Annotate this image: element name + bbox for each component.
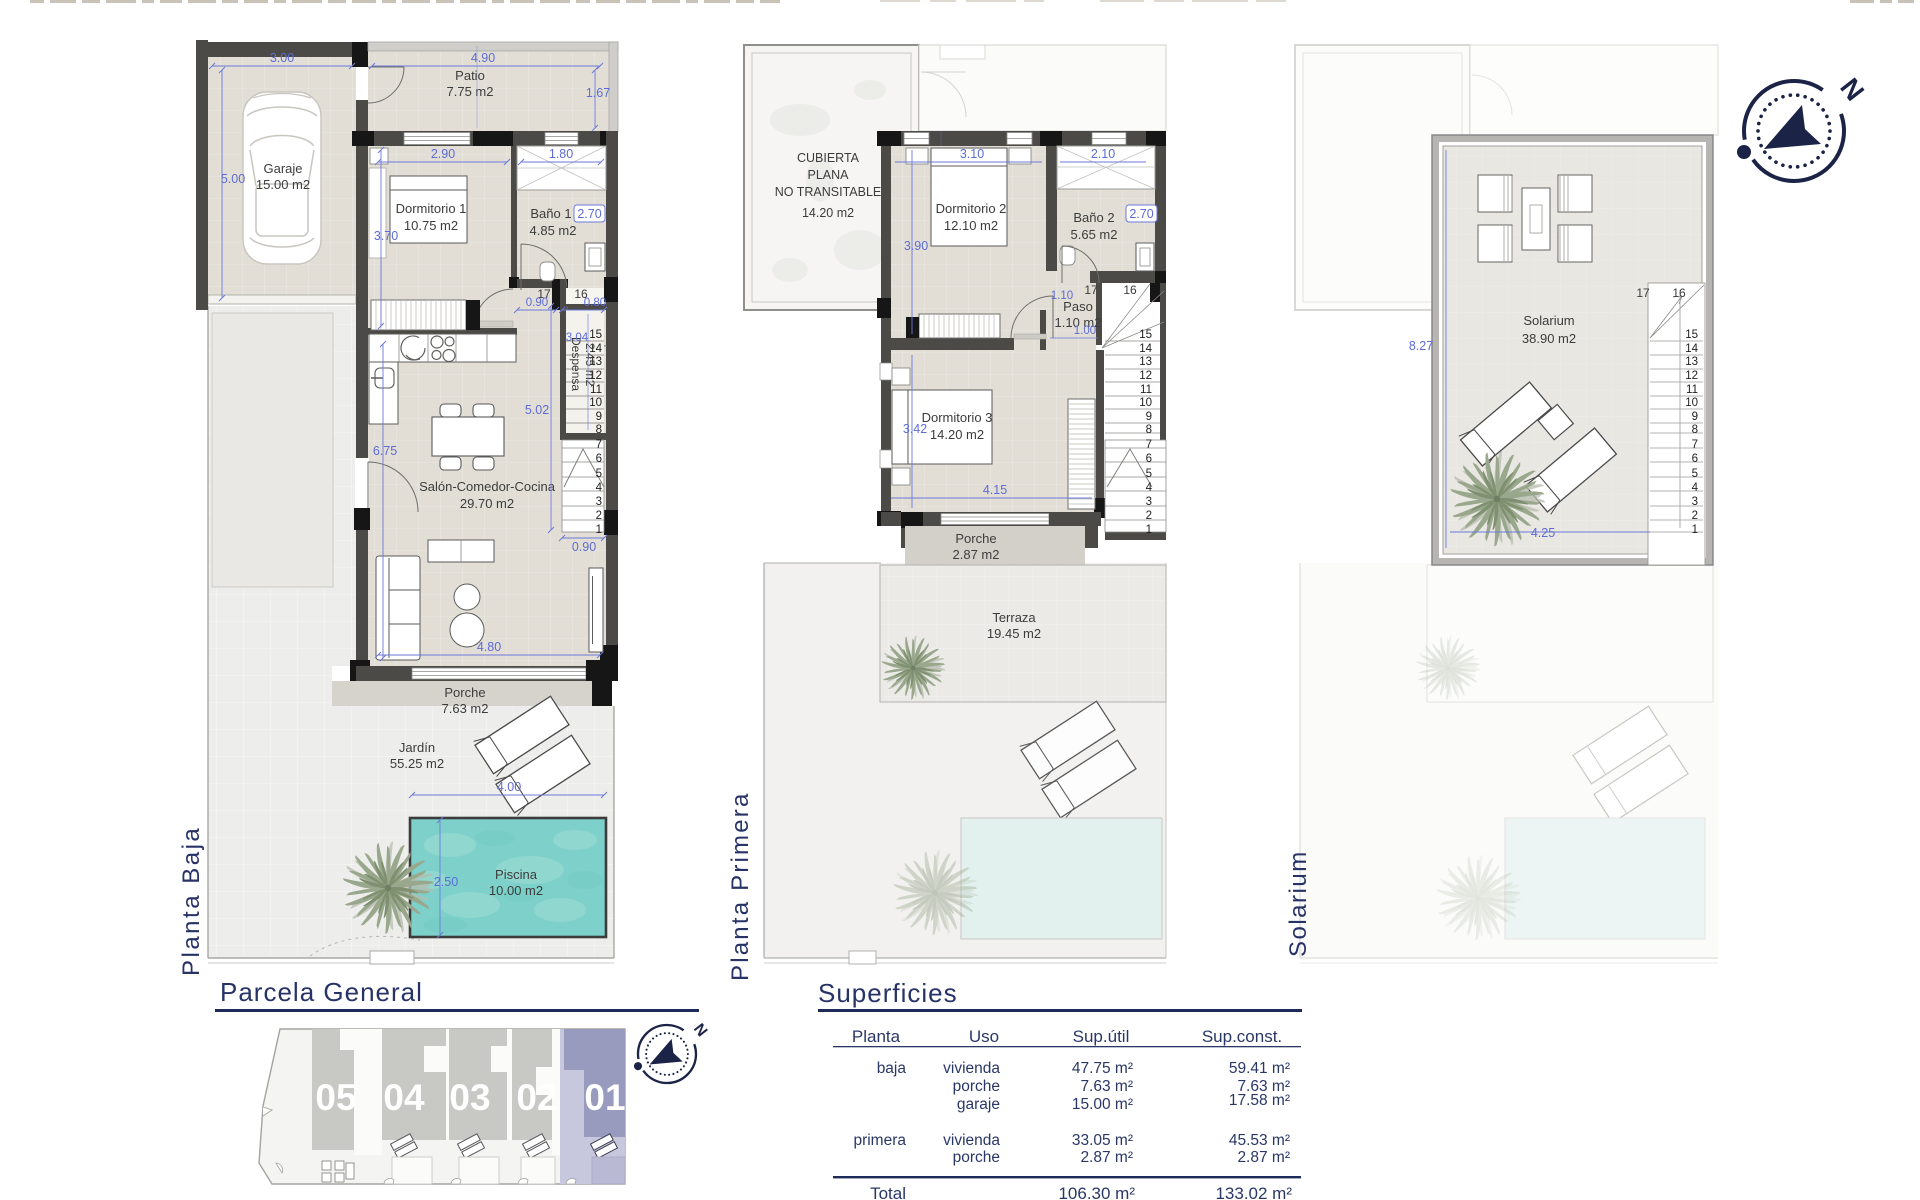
svg-text:vivienda: vivienda xyxy=(943,1060,1000,1077)
svg-text:17: 17 xyxy=(1084,283,1098,297)
svg-text:9: 9 xyxy=(596,411,602,423)
svg-text:3.90: 3.90 xyxy=(904,239,928,253)
svg-text:Total: Total xyxy=(870,1184,906,1200)
svg-text:Patio: Patio xyxy=(455,68,485,83)
svg-text:1.10: 1.10 xyxy=(1051,290,1073,302)
svg-text:PLANA: PLANA xyxy=(808,168,850,182)
svg-text:7.75 m2: 7.75 m2 xyxy=(447,84,494,99)
svg-text:4.85 m2: 4.85 m2 xyxy=(530,223,577,238)
svg-text:Dormitorio 1: Dormitorio 1 xyxy=(396,201,467,216)
svg-text:10.00 m2: 10.00 m2 xyxy=(489,883,543,898)
svg-text:5: 5 xyxy=(1692,468,1698,480)
svg-text:7.63 m2: 7.63 m2 xyxy=(442,701,489,716)
svg-text:Planta Primera: Planta Primera xyxy=(727,791,754,981)
svg-text:Terraza: Terraza xyxy=(992,610,1036,625)
svg-text:2.87 m²: 2.87 m² xyxy=(1080,1149,1133,1166)
svg-text:2.87 m²: 2.87 m² xyxy=(1237,1149,1290,1166)
svg-text:1: 1 xyxy=(596,524,602,536)
svg-text:primera: primera xyxy=(853,1132,906,1149)
svg-text:15: 15 xyxy=(1139,329,1152,341)
svg-text:4.15: 4.15 xyxy=(983,483,1007,497)
svg-text:3.70: 3.70 xyxy=(374,229,398,243)
svg-text:9: 9 xyxy=(1146,411,1152,423)
svg-text:1.00: 1.00 xyxy=(1074,325,1096,337)
svg-text:3.04: 3.04 xyxy=(566,332,589,344)
svg-text:10: 10 xyxy=(1685,397,1698,409)
svg-text:16: 16 xyxy=(1123,283,1137,297)
svg-text:2.87 m2: 2.87 m2 xyxy=(953,547,1000,562)
svg-text:2: 2 xyxy=(1692,510,1698,522)
svg-text:55.25 m2: 55.25 m2 xyxy=(390,756,444,771)
svg-text:7: 7 xyxy=(1692,439,1698,451)
svg-text:baja: baja xyxy=(877,1060,907,1077)
svg-text:6.75: 6.75 xyxy=(373,444,397,458)
svg-text:5.00: 5.00 xyxy=(221,172,245,186)
svg-text:4: 4 xyxy=(1146,482,1153,494)
svg-text:Baño 1: Baño 1 xyxy=(530,206,571,221)
svg-text:Jardín: Jardín xyxy=(399,740,435,755)
svg-text:38.90 m2: 38.90 m2 xyxy=(1522,331,1576,346)
svg-text:11: 11 xyxy=(1686,384,1698,396)
svg-text:1: 1 xyxy=(1692,524,1698,536)
svg-text:3: 3 xyxy=(1146,496,1152,508)
svg-text:porche: porche xyxy=(953,1078,1000,1095)
svg-text:2.50: 2.50 xyxy=(434,875,458,889)
svg-text:14.20 m2: 14.20 m2 xyxy=(930,427,984,442)
svg-text:1.67: 1.67 xyxy=(586,86,610,100)
svg-text:0.90: 0.90 xyxy=(526,297,548,309)
svg-text:3: 3 xyxy=(1692,496,1698,508)
svg-text:Salón-Comedor-Cocina: Salón-Comedor-Cocina xyxy=(419,479,556,494)
svg-text:6: 6 xyxy=(1692,453,1698,465)
svg-text:4: 4 xyxy=(596,482,603,494)
svg-text:16: 16 xyxy=(1672,286,1686,300)
svg-text:17: 17 xyxy=(1636,286,1650,300)
svg-text:Parcela General: Parcela General xyxy=(220,977,423,1007)
svg-text:7: 7 xyxy=(596,439,602,451)
svg-text:Dormitorio 2: Dormitorio 2 xyxy=(936,201,1007,216)
svg-text:NO TRANSITABLE: NO TRANSITABLE xyxy=(775,185,882,199)
svg-text:10: 10 xyxy=(589,397,602,409)
svg-text:59.41 m²: 59.41 m² xyxy=(1229,1060,1290,1077)
svg-text:3.42: 3.42 xyxy=(903,422,927,436)
svg-text:5: 5 xyxy=(1146,468,1152,480)
svg-text:14: 14 xyxy=(1685,343,1698,355)
svg-text:Piscina: Piscina xyxy=(495,867,538,882)
svg-text:19.45 m2: 19.45 m2 xyxy=(987,626,1041,641)
svg-text:33.05 m²: 33.05 m² xyxy=(1072,1132,1133,1149)
svg-text:10.75 m2: 10.75 m2 xyxy=(404,218,458,233)
svg-text:15.00 m2: 15.00 m2 xyxy=(256,177,310,192)
svg-text:5: 5 xyxy=(596,468,602,480)
svg-text:04: 04 xyxy=(383,1077,425,1118)
svg-text:2: 2 xyxy=(1146,510,1152,522)
svg-text:2: 2 xyxy=(596,510,602,522)
svg-text:12: 12 xyxy=(1685,370,1698,382)
svg-text:Sup.útil: Sup.útil xyxy=(1073,1027,1130,1046)
svg-text:vivienda: vivienda xyxy=(943,1132,1000,1149)
svg-text:8: 8 xyxy=(1146,424,1152,436)
svg-text:15: 15 xyxy=(589,329,602,341)
svg-text:02: 02 xyxy=(516,1077,557,1118)
svg-text:Planta: Planta xyxy=(852,1027,901,1046)
svg-text:4.80: 4.80 xyxy=(477,640,501,654)
svg-text:2.10: 2.10 xyxy=(1091,147,1115,161)
svg-text:12: 12 xyxy=(1139,370,1152,382)
svg-text:3.00: 3.00 xyxy=(270,51,294,65)
svg-text:0.90: 0.90 xyxy=(572,540,596,554)
svg-text:5.65 m2: 5.65 m2 xyxy=(1071,227,1118,242)
svg-text:106.30 m²: 106.30 m² xyxy=(1058,1184,1135,1200)
svg-text:10: 10 xyxy=(1139,397,1152,409)
svg-text:15.00 m²: 15.00 m² xyxy=(1072,1096,1133,1113)
svg-text:4.00: 4.00 xyxy=(497,780,521,794)
svg-text:01: 01 xyxy=(584,1077,625,1118)
svg-text:14: 14 xyxy=(1139,343,1152,355)
svg-text:8: 8 xyxy=(1692,424,1698,436)
svg-text:Sup.const.: Sup.const. xyxy=(1202,1027,1282,1046)
svg-text:13: 13 xyxy=(1685,356,1698,368)
svg-text:29.70 m2: 29.70 m2 xyxy=(460,496,514,511)
svg-text:7.63 m²: 7.63 m² xyxy=(1080,1078,1133,1095)
svg-text:133.02 m²: 133.02 m² xyxy=(1215,1184,1292,1200)
svg-text:Solarium: Solarium xyxy=(1523,313,1574,328)
svg-text:05: 05 xyxy=(315,1077,356,1118)
svg-text:Solarium: Solarium xyxy=(1285,850,1312,957)
svg-text:garaje: garaje xyxy=(957,1096,1000,1113)
svg-text:4: 4 xyxy=(1692,482,1699,494)
svg-text:9: 9 xyxy=(1692,411,1698,423)
svg-text:1.80: 1.80 xyxy=(549,147,573,161)
svg-text:5.02: 5.02 xyxy=(525,403,549,417)
svg-text:8.27: 8.27 xyxy=(1409,339,1433,353)
svg-text:Baño 2: Baño 2 xyxy=(1073,210,1114,225)
svg-text:4.25: 4.25 xyxy=(1531,526,1555,540)
svg-text:Planta Baja: Planta Baja xyxy=(178,826,205,976)
svg-text:3.10: 3.10 xyxy=(960,147,984,161)
svg-text:6: 6 xyxy=(596,453,602,465)
svg-text:porche: porche xyxy=(953,1149,1000,1166)
svg-text:17.58 m²: 17.58 m² xyxy=(1229,1092,1290,1109)
svg-text:2.70: 2.70 xyxy=(1129,207,1153,221)
svg-text:Garaje: Garaje xyxy=(263,161,302,176)
svg-text:Porche: Porche xyxy=(955,531,996,546)
svg-text:CUBIERTA: CUBIERTA xyxy=(797,151,860,165)
svg-text:2.90: 2.90 xyxy=(431,147,455,161)
svg-text:6: 6 xyxy=(1146,453,1152,465)
svg-text:13: 13 xyxy=(1139,356,1152,368)
svg-text:47.75 m²: 47.75 m² xyxy=(1072,1060,1133,1077)
svg-text:0.80: 0.80 xyxy=(584,297,606,309)
svg-text:3: 3 xyxy=(596,496,602,508)
svg-text:15: 15 xyxy=(1685,329,1698,341)
svg-text:45.53 m²: 45.53 m² xyxy=(1229,1132,1290,1149)
svg-text:4.90: 4.90 xyxy=(471,51,495,65)
svg-text:Superficies: Superficies xyxy=(818,978,958,1008)
svg-text:Uso: Uso xyxy=(969,1027,999,1046)
svg-text:2.70: 2.70 xyxy=(577,207,601,221)
svg-text:03: 03 xyxy=(449,1077,490,1118)
svg-text:7: 7 xyxy=(1146,439,1152,451)
svg-text:2.45 m2: 2.45 m2 xyxy=(583,343,597,387)
svg-text:1: 1 xyxy=(1146,524,1152,536)
svg-text:12.10 m2: 12.10 m2 xyxy=(944,218,998,233)
svg-text:Porche: Porche xyxy=(444,685,485,700)
svg-text:14.20 m2: 14.20 m2 xyxy=(802,206,854,220)
svg-text:8: 8 xyxy=(596,424,602,436)
svg-text:11: 11 xyxy=(1140,384,1152,396)
svg-text:Dormitorio 3: Dormitorio 3 xyxy=(922,410,993,425)
svg-text:Despensa: Despensa xyxy=(569,337,583,391)
